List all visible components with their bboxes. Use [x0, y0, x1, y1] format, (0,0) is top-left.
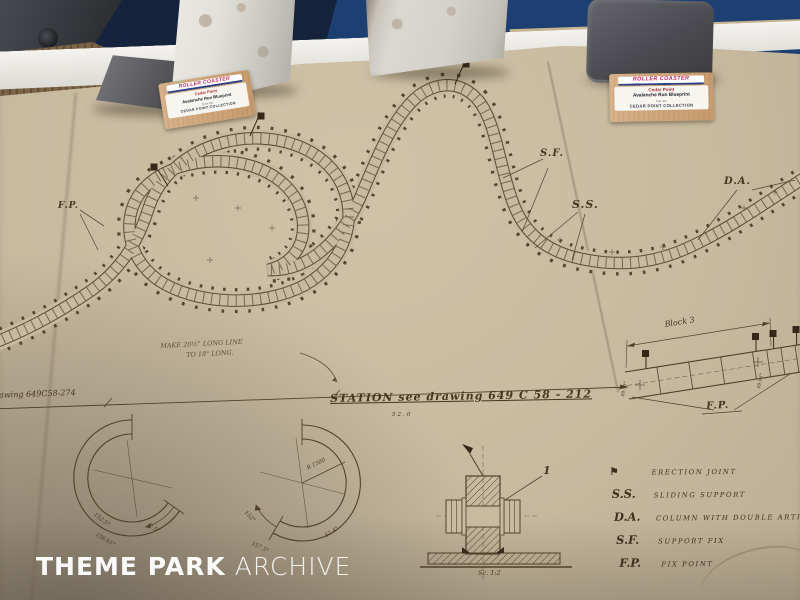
legend-desc: COLUMN WITH DOUBLE ARTICULATION [656, 513, 800, 523]
museum-card-right: ROLLER COASTER Cedar Point Avalanche Run… [609, 72, 714, 122]
machine-wheel [38, 28, 58, 48]
track-label-da: D.A. [724, 176, 751, 187]
station-subnote: 52.0 [392, 412, 412, 418]
track-label-fp: F.P. [58, 201, 79, 211]
legend-desc: FIX POINT [661, 560, 713, 568]
legend-row-sliding-support: S.S. SLIDING SUPPORT [612, 485, 800, 501]
legend-key: D.A. [614, 510, 656, 524]
roller-coaster-museum-logo: ROLLER COASTER [618, 75, 703, 85]
legend-row-fix-point: F.P. FIX POINT [619, 554, 800, 570]
bolt-detail-callout: 1 [543, 464, 552, 477]
watermark-bold-text: THEME PARK [36, 552, 226, 581]
legend-desc: ERECTION JOINT [652, 468, 737, 477]
watermark-light-text: ARCHIVE [235, 552, 352, 581]
legend-key: S.S. [612, 487, 654, 501]
track-label-sf: S.F. [540, 148, 564, 159]
card-label: Cedar Point Avalanche Run Blueprint from… [614, 85, 708, 111]
paper-crease [547, 61, 619, 392]
legend-row-erection-joint: ⚑ ERECTION JOINT [610, 465, 800, 478]
legend-desc: SUPPORT FIX [658, 537, 725, 546]
bolt-detail-scale: Sc. 1:2 [478, 569, 501, 577]
photo-scene: F.P. S.F. S.S. D.A. STATION see drawing … [0, 0, 800, 600]
legend-row-support-fix: S.F. SUPPORT FIX [616, 531, 800, 547]
legend-desc: SLIDING SUPPORT [654, 491, 746, 500]
legend-key: S.F. [616, 532, 658, 546]
block-detail-fp-label: F.P. [706, 400, 729, 412]
legend-row-double-articulation: D.A. COLUMN WITH DOUBLE ARTICULATION [614, 508, 800, 524]
flag-icon: ⚑ [610, 467, 652, 478]
legend-key: F.P. [619, 555, 661, 569]
paper-crease [30, 93, 78, 600]
blueprint-legend: ⚑ ERECTION JOINT S.S. SLIDING SUPPORT D.… [610, 465, 800, 579]
card-collection: CEDAR POINT COLLECTION [615, 102, 709, 109]
theme-park-archive-watermark: THEME PARKARCHIVE [36, 552, 351, 581]
track-label-ss: S.S. [572, 198, 599, 211]
